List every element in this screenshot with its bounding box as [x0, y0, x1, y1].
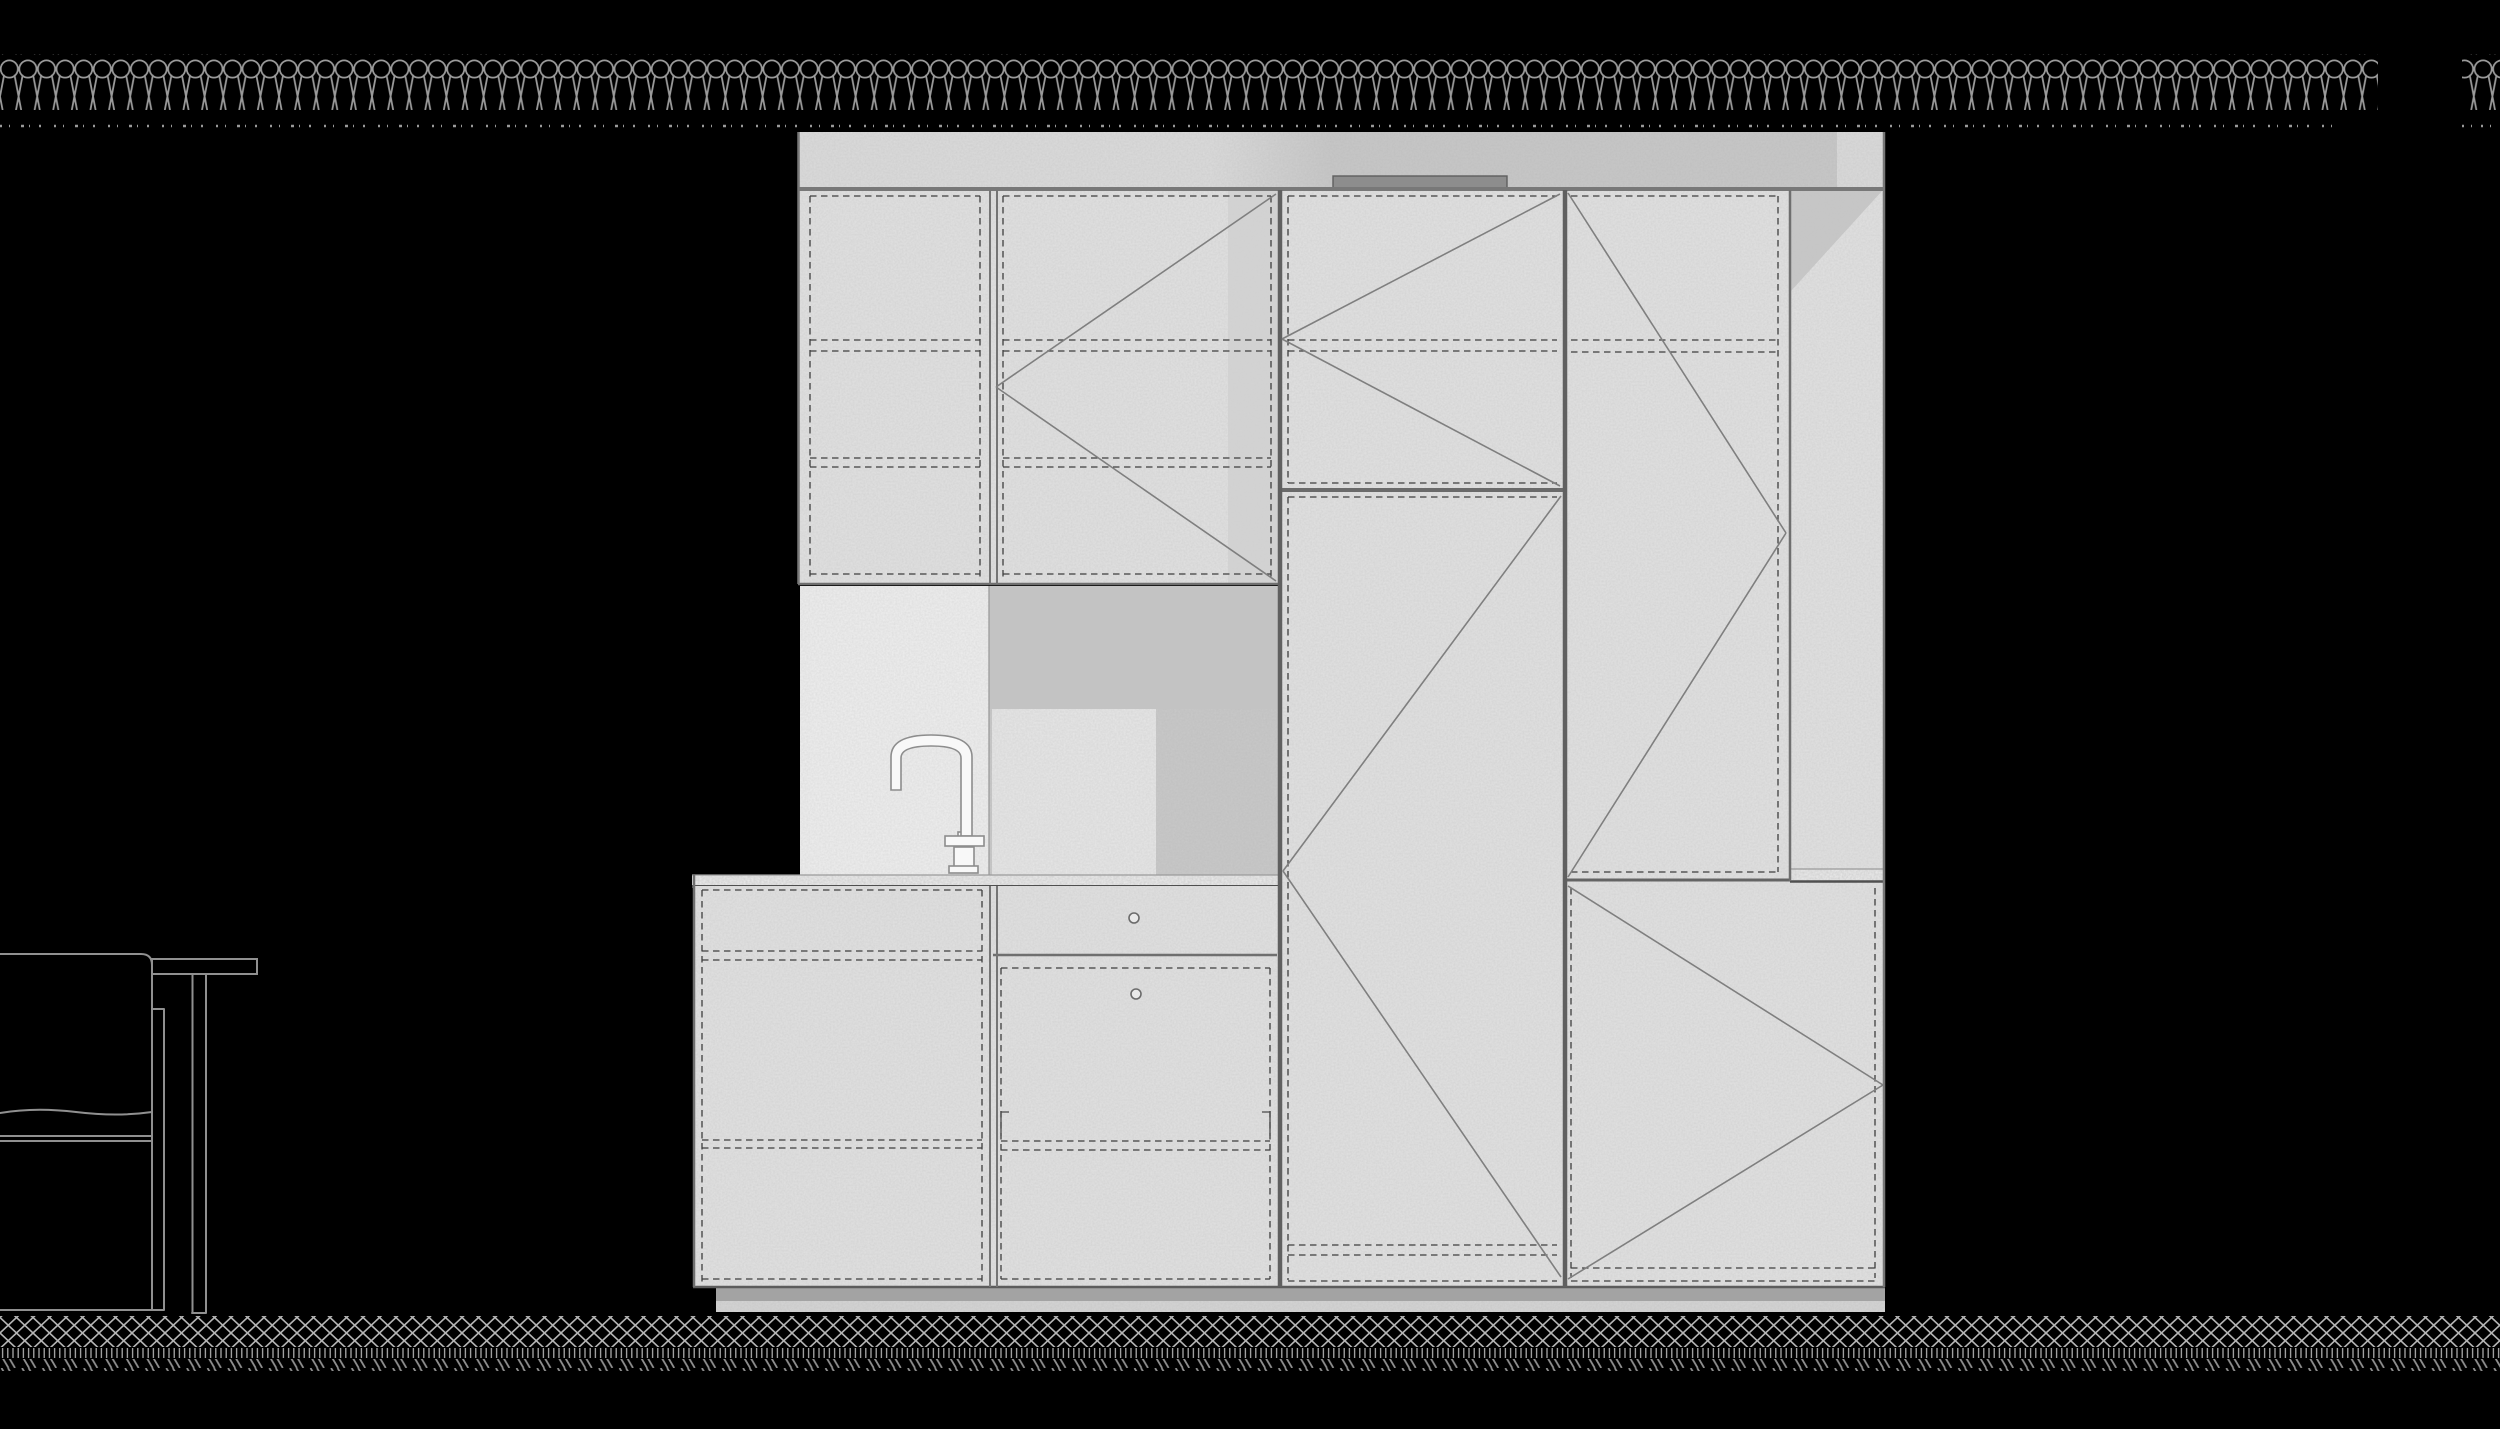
- base-left-cabinet-panel: [694, 886, 990, 1287]
- insulation-hatch-band: [0, 54, 2500, 110]
- elevation-drawing-canvas: [0, 0, 2500, 1429]
- door-knob: [1131, 989, 1141, 999]
- niche-top-shadow: [989, 586, 1280, 709]
- base-mid-cabinet-panel: [990, 886, 1280, 1287]
- upper-cabinets-panel: [798, 190, 1280, 584]
- right-upper-door-panel: [1565, 190, 1790, 880]
- right-side-panel: [1790, 190, 1885, 869]
- side-counter-band: [1790, 869, 1885, 881]
- niche-back-wall: [992, 709, 1156, 875]
- drawer-knob: [1129, 913, 1139, 923]
- ground-tick-comb: [0, 1348, 2500, 1358]
- faucet-cross-handle: [945, 836, 984, 846]
- toe-kick-shadow: [716, 1287, 1885, 1301]
- top-filler-right-notch: [1837, 132, 1885, 190]
- tall-middle-column-panel: [1280, 190, 1565, 1287]
- table-top: [152, 959, 257, 974]
- right-lower-door-panel: [1565, 880, 1885, 1287]
- ground-diamond-lattice: [0, 1316, 2500, 1347]
- countertop-slab: [692, 875, 1280, 886]
- faucet-body-cylinder: [954, 847, 974, 867]
- insulation-segment-left: [0, 54, 2378, 110]
- plinth-light-band: [716, 1301, 1885, 1312]
- insulation-segment-right: [2462, 54, 2500, 110]
- ground-diagonal-dashes: [0, 1359, 2500, 1371]
- faucet-base-plate: [949, 866, 978, 873]
- cabinet-elevation: [692, 132, 1885, 1312]
- ground-hatch: [0, 1316, 2500, 1371]
